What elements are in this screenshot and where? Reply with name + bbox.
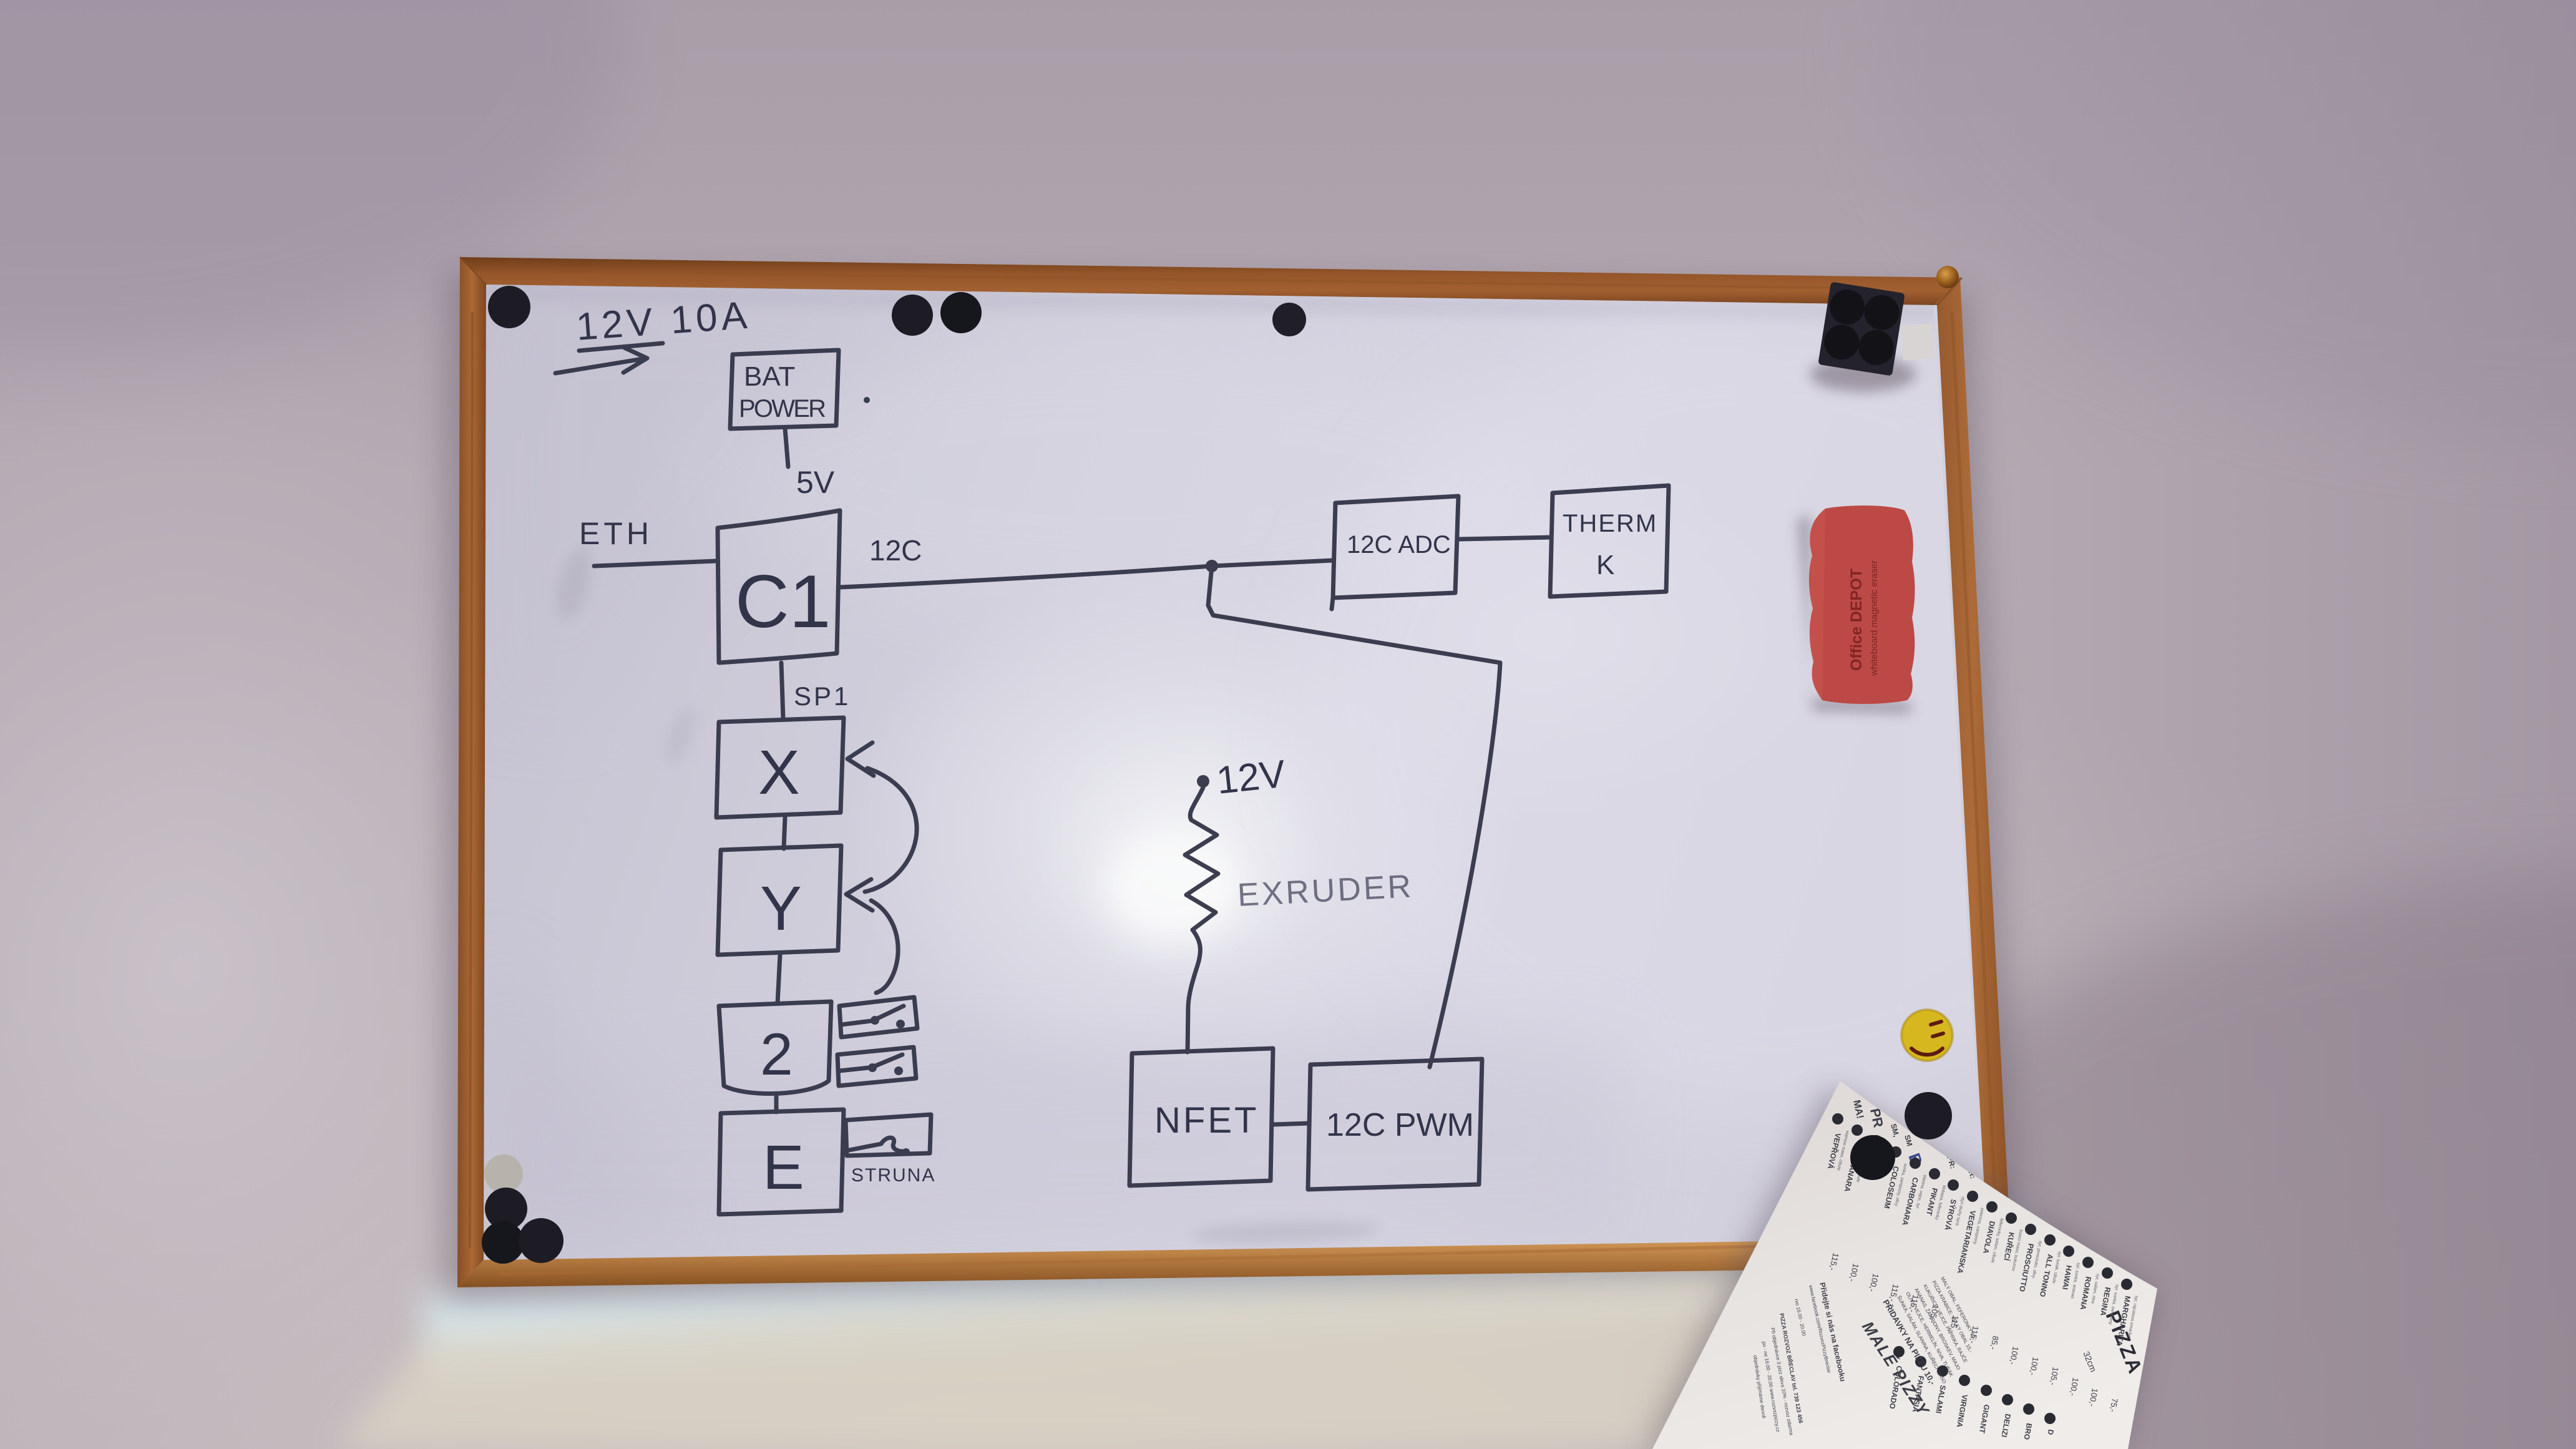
svg-text:12C ADC: 12C ADC xyxy=(1347,531,1451,559)
svg-text:X: X xyxy=(758,738,800,807)
svg-text:K: K xyxy=(1596,550,1614,580)
svg-text:12C: 12C xyxy=(869,534,922,567)
svg-text:POWER: POWER xyxy=(739,395,826,422)
svg-text:SP1: SP1 xyxy=(794,681,851,711)
svg-text:C1: C1 xyxy=(735,560,831,643)
svg-text:12C PWM: 12C PWM xyxy=(1326,1107,1474,1143)
svg-text:Y: Y xyxy=(760,874,802,944)
svg-text:ETH: ETH xyxy=(579,516,653,551)
svg-text:whiteboard magnetic eraser: whiteboard magnetic eraser xyxy=(1869,560,1880,676)
svg-text:BAT: BAT xyxy=(744,361,795,392)
svg-text:12V: 12V xyxy=(1214,753,1288,803)
svg-text:5V: 5V xyxy=(796,465,835,500)
svg-text:2: 2 xyxy=(760,1022,793,1088)
svg-text:Office DEPOT: Office DEPOT xyxy=(1848,568,1865,671)
svg-text:STRUNA: STRUNA xyxy=(851,1165,935,1186)
svg-text:THERM: THERM xyxy=(1563,510,1657,537)
svg-text:NFET: NFET xyxy=(1154,1100,1259,1141)
svg-text:E: E xyxy=(763,1133,804,1203)
